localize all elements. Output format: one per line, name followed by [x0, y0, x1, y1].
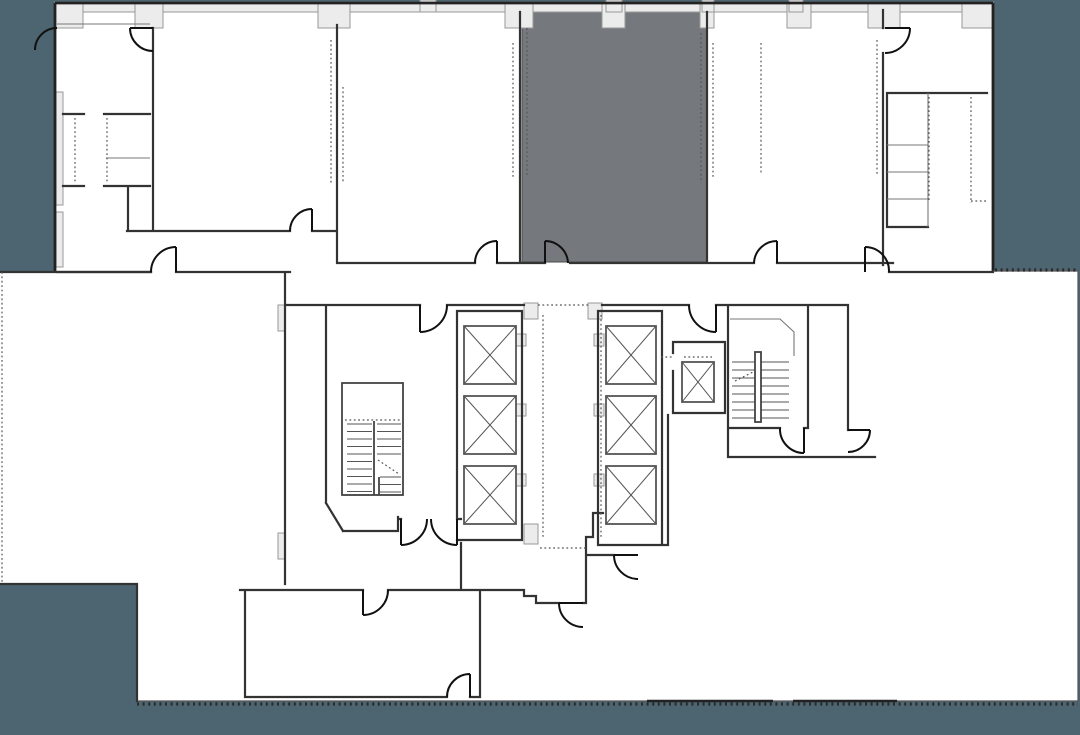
elevator-shaft — [606, 396, 656, 454]
floor-plan-viewport — [0, 0, 1080, 735]
elevator-shaft — [464, 466, 516, 524]
elevator-shaft — [464, 396, 516, 454]
floor-plan-canvas — [0, 0, 1080, 735]
service-elevator-shaft — [682, 362, 714, 402]
highlighted-suite[interactable] — [522, 12, 707, 262]
elevator-shaft — [464, 326, 516, 384]
elevator-shaft — [606, 466, 656, 524]
elevator-shaft — [606, 326, 656, 384]
